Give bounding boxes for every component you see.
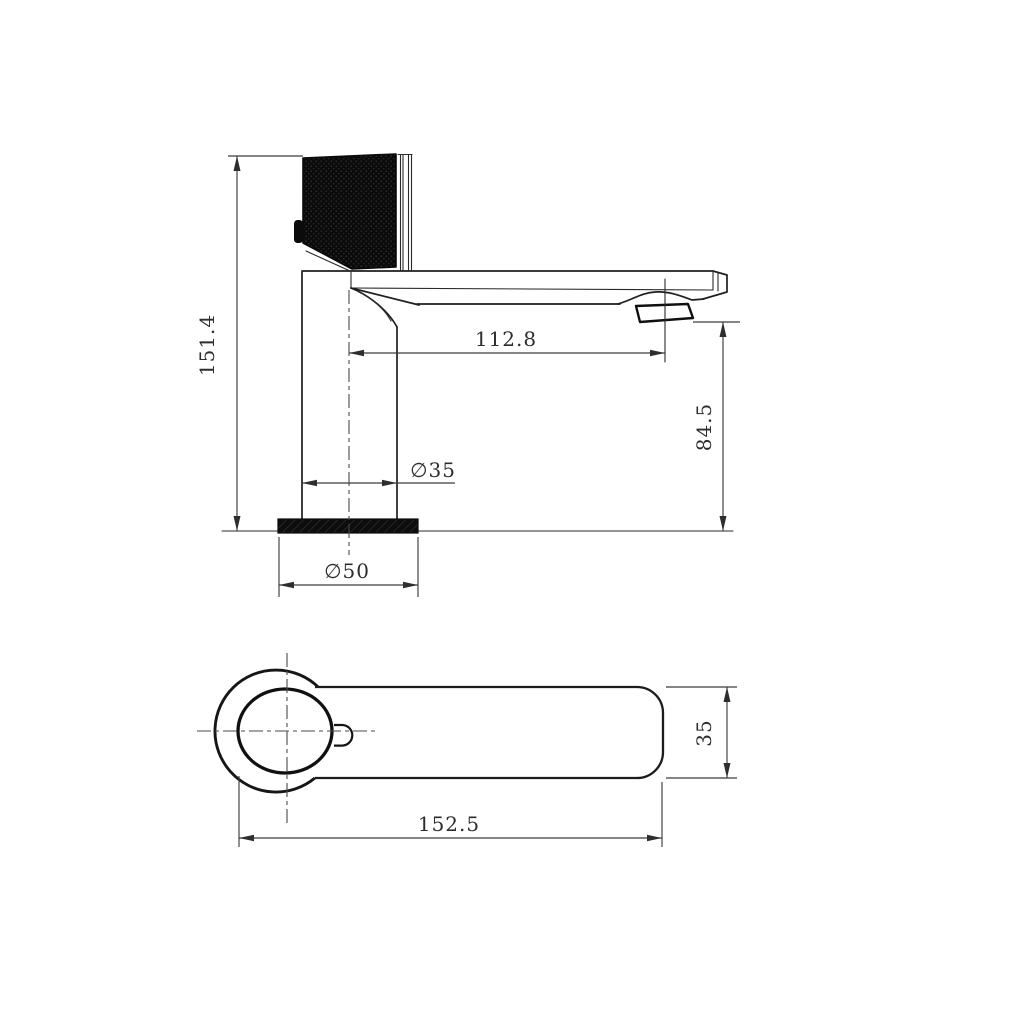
dim-spout-reach-label: 112.8 bbox=[475, 327, 537, 351]
aerator bbox=[636, 279, 693, 362]
side-view: 151.4 112.8 84.5 ∅35 bbox=[195, 154, 740, 597]
spout-root-curve-inner bbox=[357, 291, 391, 321]
spout-bar bbox=[315, 687, 663, 778]
dim-total-length-label: 152.5 bbox=[418, 812, 480, 836]
dimension-total-height: 151.4 bbox=[195, 156, 303, 531]
faucet-technical-drawing: 151.4 112.8 84.5 ∅35 bbox=[0, 0, 1024, 1024]
handle-block bbox=[303, 154, 396, 269]
spout-inner-line bbox=[352, 288, 713, 290]
faucet-body-outline bbox=[302, 271, 727, 519]
dim-base-diameter-label: ∅50 bbox=[324, 559, 370, 583]
dim-body-diameter-label: ∅35 bbox=[410, 458, 456, 482]
dimension-outlet-height: 84.5 bbox=[692, 322, 740, 531]
handle-side-nub bbox=[294, 220, 303, 243]
top-view: 152.5 35 bbox=[197, 653, 737, 847]
dimension-spout-width: 35 bbox=[666, 687, 737, 778]
dim-spout-width-label: 35 bbox=[692, 719, 716, 746]
dim-outlet-height-label: 84.5 bbox=[692, 403, 716, 452]
technical-drawing-page: 151.4 112.8 84.5 ∅35 bbox=[0, 0, 1024, 1024]
aerator-fairing-curve bbox=[618, 292, 704, 304]
handle-plates bbox=[398, 155, 412, 272]
dim-total-height-label: 151.4 bbox=[195, 314, 219, 376]
dimension-body-diameter: ∅35 bbox=[302, 458, 456, 486]
handle-knurled bbox=[294, 154, 412, 271]
handle-indicator-nub bbox=[334, 725, 352, 746]
spout-root-slant bbox=[351, 288, 419, 305]
base-plate bbox=[278, 519, 418, 533]
